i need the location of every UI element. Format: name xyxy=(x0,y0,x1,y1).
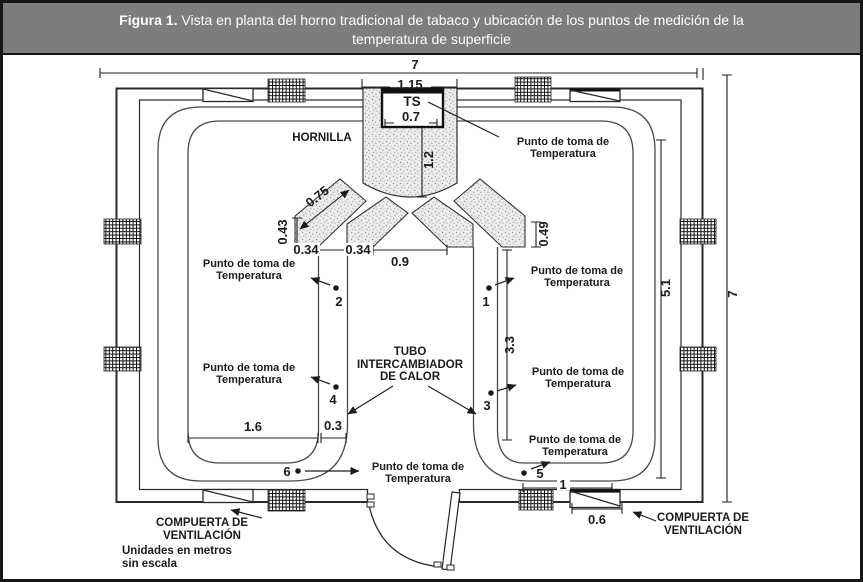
temp-point-4-label1: Punto de toma de xyxy=(203,362,295,374)
tube-label-line2: INTERCAMBIADOR xyxy=(357,359,464,371)
mesh-vent-right-upper xyxy=(680,219,716,244)
dim-chimney-depth-value: 1.2 xyxy=(421,151,436,169)
dim-inner-height: 5.1 xyxy=(656,140,673,478)
tube-label-line3: DE CALOR xyxy=(380,371,441,383)
figure-caption-text: Vista en planta del horno tradicional de… xyxy=(178,12,744,28)
vent-gate-top-left xyxy=(203,89,253,102)
mesh-vent-right-lower xyxy=(680,347,716,371)
temp-point-6-number: 6 xyxy=(283,464,290,479)
temp-point-5: 5 Punto de toma de Temperatura xyxy=(521,434,621,481)
door xyxy=(367,487,460,570)
temp-point-ts-label1: Punto de toma de xyxy=(517,136,609,148)
vent-gate-label-left: COMPUERTA DE VENTILACIÓN xyxy=(156,510,262,542)
dim-outlet-a-value: 0.34 xyxy=(293,242,319,257)
mesh-vent-top-left xyxy=(268,79,305,102)
door-opening xyxy=(368,487,459,505)
temp-point-4-number: 4 xyxy=(329,392,337,407)
mesh-vent-bottom-right xyxy=(519,490,553,510)
dim-door-span-value: 1 xyxy=(559,477,566,492)
dim-total-height-value: 7 xyxy=(725,290,740,297)
temp-point-5-dot xyxy=(521,470,527,476)
units-note-line1: Unidades en metros xyxy=(122,545,232,557)
dim-gate-width-value: 0.6 xyxy=(588,512,606,527)
hornilla-label: HORNILLA xyxy=(292,132,351,144)
temp-point-2: 2 Punto de toma de Temperatura xyxy=(203,258,343,309)
vent-gate-left-line1: COMPUERTA DE xyxy=(156,517,248,529)
dim-bottom-left-span-value: 1.6 xyxy=(244,419,262,434)
figure-frame: Figura 1. Vista en planta del horno trad… xyxy=(0,0,863,582)
vent-gate-bottom-left xyxy=(203,490,253,503)
temp-point-ts-label2: Temperatura xyxy=(530,148,597,160)
dim-tube-run-value: 3.3 xyxy=(502,336,517,354)
dim-ts-width-value: 0.7 xyxy=(402,109,420,124)
temp-point-3: 3 Punto de toma de Temperatura xyxy=(483,366,624,413)
dim-center-span-value: 0.9 xyxy=(391,254,409,269)
dim-tube-width-value: 0.3 xyxy=(324,418,342,433)
dim-total-width-value: 7 xyxy=(411,57,418,72)
figure-number: Figura 1. xyxy=(119,12,177,28)
dim-right-outlet-height-value: 0.49 xyxy=(536,221,551,246)
tube-label-line1: TUBO xyxy=(394,346,427,358)
temp-point-5-label1: Punto de toma de xyxy=(529,434,621,446)
vent-gate-right-line1: COMPUERTA DE xyxy=(657,512,749,524)
units-note-line2: sin escala xyxy=(122,558,178,570)
door-swing-arc xyxy=(369,505,441,567)
mesh-vent-top-right xyxy=(515,77,551,102)
dim-chimney-width-value: 1.15 xyxy=(397,77,422,92)
temp-point-1-label2: Temperatura xyxy=(544,277,611,289)
temp-point-2-label1: Punto de toma de xyxy=(203,258,295,270)
temp-point-1-dot xyxy=(486,285,492,291)
vent-gate-label-right: COMPUERTA DE VENTILACIÓN xyxy=(633,512,749,537)
temp-point-2-label2: Temperatura xyxy=(216,270,283,282)
tube-heat-exchanger-label: TUBO INTERCAMBIADOR DE CALOR xyxy=(348,346,476,414)
dim-tube-run: 3.3 xyxy=(502,250,517,440)
temp-point-1-label1: Punto de toma de xyxy=(531,265,623,277)
dim-outlet-row: 0.34 0.34 0.9 xyxy=(292,242,447,269)
dim-outlet-b-value: 0.34 xyxy=(345,242,371,257)
temp-point-4-label2: Temperatura xyxy=(216,374,283,386)
temp-point-3-dot xyxy=(488,390,494,396)
mesh-vent-left-lower xyxy=(104,347,141,371)
temp-point-2-number: 2 xyxy=(335,294,342,309)
dim-left-outlet-height-value: 0.43 xyxy=(275,219,290,244)
temp-point-3-label2: Temperatura xyxy=(545,378,612,390)
dim-total-height: 7 xyxy=(722,75,740,502)
temp-point-5-label2: Temperatura xyxy=(542,446,609,458)
mesh-vent-bottom-left xyxy=(268,490,305,511)
units-note: Unidades en metros sin escala xyxy=(122,545,232,570)
vent-gate-right-line2: VENTILACIÓN xyxy=(664,524,742,537)
temp-point-6-label2: Temperatura xyxy=(385,473,452,485)
vent-gate-left-line2: VENTILACIÓN xyxy=(163,529,241,542)
temp-point-6-label1: Punto de toma de xyxy=(372,461,464,473)
mesh-vent-left-upper xyxy=(104,219,141,244)
temp-point-3-number: 3 xyxy=(483,398,490,413)
door-hinge-marks xyxy=(367,494,454,570)
temp-point-4-dot xyxy=(333,384,339,390)
temp-point-6: 6 Punto de toma de Temperatura xyxy=(283,461,464,485)
temp-point-1: 1 Punto de toma de Temperatura xyxy=(482,265,623,309)
temp-point-3-label1: Punto de toma de xyxy=(532,366,624,378)
ts-label: TS xyxy=(403,94,420,109)
kiln-plan-diagram: 7 1.15 TS 0.7 1.2 0.75 0.43 0.49 xyxy=(3,55,860,576)
temp-point-5-number: 5 xyxy=(536,466,543,481)
figure-caption-line2: temperatura de superficie xyxy=(3,30,860,49)
figure-caption-bar: Figura 1. Vista en planta del horno trad… xyxy=(3,3,860,55)
vent-gate-bottom-right xyxy=(570,490,620,508)
temp-point-1-number: 1 xyxy=(482,294,489,309)
vent-gate-top-right xyxy=(570,89,620,102)
temp-point-2-dot xyxy=(333,285,339,291)
dim-inner-height-value: 5.1 xyxy=(658,279,673,297)
dim-bottom-left-span: 1.6 0.3 xyxy=(188,418,346,443)
dim-right-outlet-height: 0.49 xyxy=(531,221,551,247)
figure-caption-line1: Figura 1. Vista en planta del horno trad… xyxy=(3,11,860,30)
temp-point-6-dot xyxy=(295,468,301,474)
